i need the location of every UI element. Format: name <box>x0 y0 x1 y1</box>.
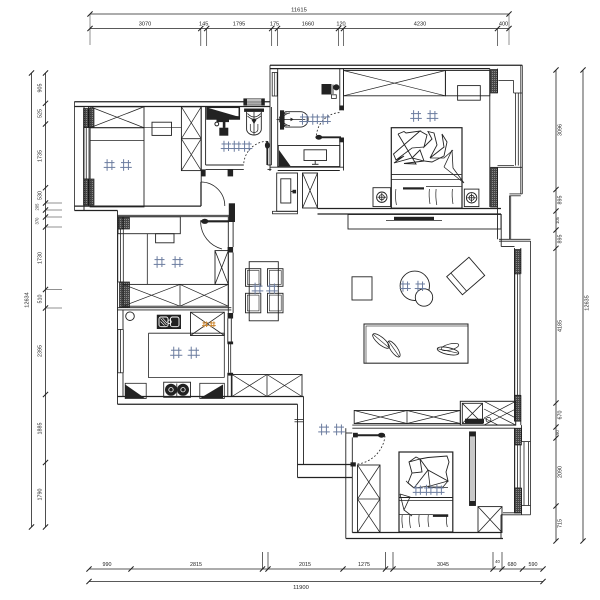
svg-text:370: 370 <box>35 217 40 225</box>
svg-text:90: 90 <box>555 430 560 435</box>
svg-text:40: 40 <box>495 559 500 564</box>
svg-text:2395: 2395 <box>38 345 44 357</box>
svg-text:1735: 1735 <box>38 150 44 162</box>
svg-text:11615: 11615 <box>291 8 307 14</box>
svg-text:2815: 2815 <box>190 562 202 568</box>
svg-text:4185: 4185 <box>558 320 564 332</box>
svg-text:120: 120 <box>336 22 345 28</box>
svg-text:4230: 4230 <box>414 22 426 28</box>
svg-text:175: 175 <box>270 22 279 28</box>
svg-text:1275: 1275 <box>358 562 370 568</box>
svg-text:895: 895 <box>558 196 564 205</box>
svg-text:2090: 2090 <box>558 466 564 478</box>
svg-text:1795: 1795 <box>233 22 245 28</box>
svg-text:680: 680 <box>508 562 517 568</box>
svg-text:145: 145 <box>199 22 208 28</box>
svg-text:990: 990 <box>103 562 112 568</box>
svg-text:530: 530 <box>38 191 44 200</box>
svg-text:525: 525 <box>38 109 44 118</box>
svg-text:1730: 1730 <box>38 252 44 264</box>
svg-text:510: 510 <box>38 295 44 304</box>
svg-text:1885: 1885 <box>38 423 44 435</box>
svg-text:12634: 12634 <box>25 292 31 308</box>
svg-text:1660: 1660 <box>302 22 314 28</box>
svg-text:205: 205 <box>35 203 40 211</box>
svg-text:400: 400 <box>499 22 508 28</box>
svg-text:105: 105 <box>555 216 560 224</box>
svg-text:3045: 3045 <box>437 562 449 568</box>
svg-text:670: 670 <box>558 411 564 420</box>
svg-text:715: 715 <box>558 519 564 528</box>
svg-text:3096: 3096 <box>558 124 564 136</box>
svg-text:11900: 11900 <box>293 585 309 591</box>
svg-text:1790: 1790 <box>38 489 44 501</box>
svg-text:895: 895 <box>558 235 564 244</box>
svg-text:3070: 3070 <box>139 22 151 28</box>
svg-text:590: 590 <box>529 562 538 568</box>
svg-text:12635: 12635 <box>585 295 591 311</box>
svg-text:2015: 2015 <box>299 562 311 568</box>
svg-text:905: 905 <box>38 84 44 93</box>
